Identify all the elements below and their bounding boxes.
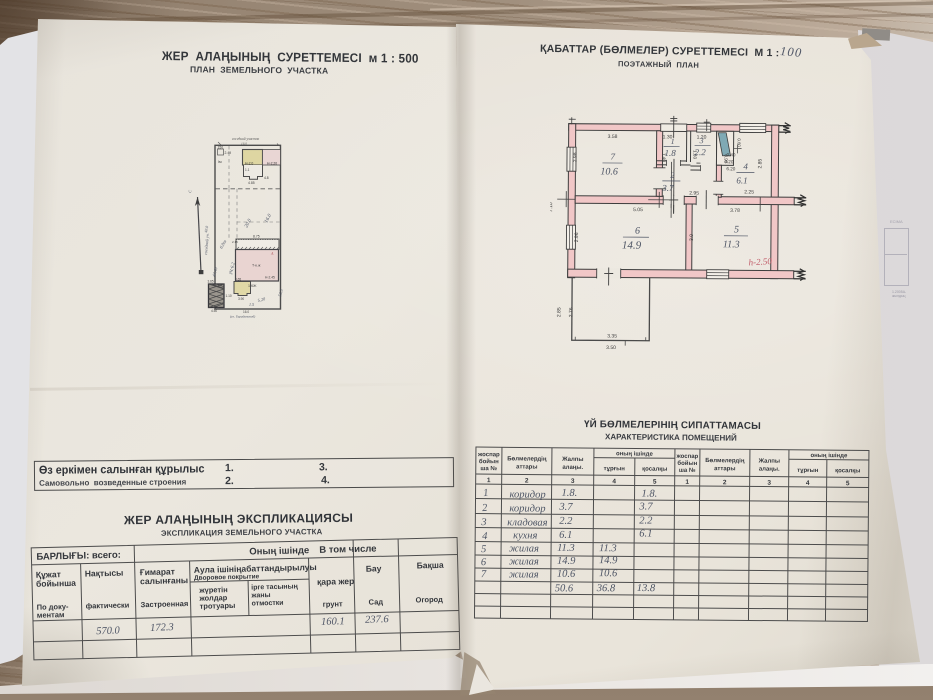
svg-text:қара жер: қара жер — [317, 576, 354, 587]
svg-text:оның ішінде: оның ішінде — [810, 453, 848, 459]
svg-text:Бау: Бау — [366, 563, 382, 573]
svg-text:4: 4 — [482, 531, 488, 542]
svg-text:аттары: аттары — [516, 464, 537, 470]
svg-text:5.20: 5.20 — [257, 296, 266, 303]
svg-text:2.96: 2.96 — [574, 232, 580, 242]
svg-text:жилая: жилая — [509, 556, 539, 567]
svg-text:1.10: 1.10 — [226, 294, 232, 298]
svg-text:Жалпы: Жалпы — [758, 459, 780, 465]
svg-text:ша №: ша № — [679, 467, 696, 474]
svg-text:БАРЛЫҒЫ: всего:: БАРЛЫҒЫ: всего: — [36, 550, 121, 563]
svg-text:14.9: 14.9 — [557, 556, 576, 567]
svg-text:2: 2 — [482, 503, 489, 515]
svg-text:А: А — [270, 251, 274, 256]
svg-text:3.7: 3.7 — [661, 183, 674, 193]
svg-text:3.50: 3.50 — [606, 345, 616, 351]
svg-text:150: 150 — [218, 145, 224, 149]
svg-text:1.5: 1.5 — [249, 302, 254, 307]
svg-text:отмостки: отмостки — [252, 600, 284, 608]
svg-text:6.1: 6.1 — [559, 530, 572, 541]
svg-text:16.0: 16.0 — [243, 310, 249, 314]
svg-text:В том числе: В том числе — [319, 543, 376, 555]
svg-text:коридор: коридор — [509, 503, 545, 514]
svg-text:14.9: 14.9 — [599, 555, 618, 566]
svg-text:44.40: 44.40 — [211, 266, 219, 277]
svg-text:3: 3 — [767, 480, 771, 487]
svg-text:3: 3 — [480, 517, 486, 528]
svg-text:3.90: 3.90 — [238, 297, 244, 301]
svg-text:бойын: бойын — [677, 460, 697, 467]
svg-text:ЗЧ:6.2: ЗЧ:6.2 — [228, 261, 236, 275]
svg-text:бойын: бойын — [479, 458, 499, 465]
svg-text:алаңы.: алаңы. — [562, 465, 583, 471]
svg-text:2.15: 2.15 — [232, 240, 238, 244]
svg-text:3.78: 3.78 — [730, 208, 740, 214]
svg-text:53.5: 53.5 — [277, 288, 284, 297]
svg-text:Жалпы: Жалпы — [561, 457, 583, 463]
svg-text:Бөлмелердің: Бөлмелердің — [705, 458, 745, 464]
svg-text:h-2.50: h-2.50 — [748, 256, 772, 267]
svg-text:6.1: 6.1 — [736, 175, 747, 185]
svg-text:коридор: коридор — [510, 489, 546, 500]
svg-text:1: 1 — [487, 477, 491, 484]
svg-text:2: 2 — [723, 479, 727, 486]
svg-text:1: 1 — [685, 479, 689, 486]
svg-text:10.6: 10.6 — [557, 569, 576, 580]
svg-text:1.8: 1.8 — [665, 148, 677, 158]
svg-text:С: С — [187, 189, 192, 193]
svg-text:2.49: 2.49 — [225, 151, 232, 155]
svg-text:5: 5 — [846, 480, 850, 487]
svg-text:3.0: 3.0 — [689, 234, 695, 241]
svg-text:тұрғын: тұрғын — [604, 466, 626, 472]
svg-text:грунт: грунт — [323, 599, 344, 608]
svg-text:10.6: 10.6 — [600, 166, 618, 177]
svg-text:1.1: 1.1 — [245, 168, 250, 172]
svg-text:6: 6 — [635, 226, 640, 237]
svg-text:237.6: 237.6 — [365, 614, 390, 626]
svg-text:жоспар: жоспар — [676, 454, 699, 460]
svg-text:соседний уч.: соседний уч. — [203, 233, 210, 255]
svg-text:11.3: 11.3 — [557, 543, 575, 554]
svg-text:1.8.: 1.8. — [642, 488, 658, 499]
svg-text:Н-2.0: Н-2.0 — [245, 161, 253, 165]
svg-text:кладовая: кладовая — [507, 517, 547, 528]
svg-text:бойынша: бойынша — [36, 578, 76, 589]
svg-text:4.85: 4.85 — [248, 181, 255, 185]
svg-text:қосалқы: қосалқы — [642, 467, 667, 473]
svg-text:Застроенная: Застроенная — [141, 599, 189, 609]
svg-text:қосалқы: қосалқы — [835, 468, 860, 474]
svg-text:3.65: 3.65 — [208, 280, 214, 284]
svg-text:2.25: 2.25 — [744, 189, 754, 195]
svg-text:4: 4 — [612, 478, 616, 485]
svg-text:соседний участок: соседний участок — [232, 136, 260, 141]
svg-text:2.76: 2.76 — [568, 307, 574, 317]
svg-text:13.8: 13.8 — [637, 583, 656, 594]
svg-text:50.6: 50.6 — [555, 583, 574, 594]
svg-text:3.7: 3.7 — [558, 502, 573, 513]
svg-text:2: 2 — [525, 477, 529, 484]
svg-text:36.8: 36.8 — [596, 583, 616, 594]
svg-text:570.0: 570.0 — [96, 625, 121, 637]
svg-text:ша №: ша № — [480, 465, 497, 472]
svg-text:Т-к.ж: Т-к.ж — [252, 264, 261, 268]
svg-text:2.98: 2.98 — [572, 152, 578, 162]
svg-text:10.6: 10.6 — [599, 568, 618, 579]
svg-text:1 КЖ: 1 КЖ — [248, 284, 257, 288]
svg-text:аттары: аттары — [714, 466, 735, 472]
svg-text:7: 7 — [481, 569, 487, 580]
svg-text:160.1: 160.1 — [321, 616, 345, 628]
svg-text:2.2: 2.2 — [695, 147, 707, 157]
svg-text:4: 4 — [743, 161, 748, 171]
svg-text:Нақтысы: Нақтысы — [85, 568, 124, 579]
svg-text:кухня: кухня — [513, 530, 537, 541]
svg-text:3.65: 3.65 — [235, 278, 241, 282]
svg-text:Н-2.20: Н-2.20 — [267, 161, 277, 165]
svg-text:6.20: 6.20 — [726, 166, 735, 171]
svg-text:тротуары: тротуары — [200, 601, 236, 611]
svg-text:0.60: 0.60 — [737, 138, 742, 147]
svg-text:3.7: 3.7 — [638, 501, 653, 512]
svg-text:Оның ішінде: Оның ішінде — [249, 545, 309, 557]
svg-text:8.75: 8.75 — [253, 235, 260, 239]
svg-text:оның ішінде: оның ішінде — [616, 451, 654, 457]
svg-text:3: 3 — [571, 478, 575, 485]
svg-text:5: 5 — [734, 224, 739, 235]
svg-text:16.0: 16.0 — [241, 142, 247, 146]
svg-text:алаңы.: алаңы. — [759, 467, 780, 473]
svg-text:жилая: жилая — [509, 543, 539, 554]
svg-text:5: 5 — [481, 544, 486, 555]
svg-text:4: 4 — [806, 480, 810, 487]
svg-text:жилая: жилая — [509, 569, 539, 580]
svg-text:2.85: 2.85 — [556, 307, 562, 317]
svg-text:Ім: Ім — [218, 160, 222, 164]
svg-text:5: 5 — [653, 479, 657, 486]
svg-text:5.05: 5.05 — [633, 207, 643, 213]
svg-text:Бақша: Бақша — [417, 560, 444, 571]
svg-text:салынғаны: салынғаны — [140, 575, 188, 586]
svg-text:2.85: 2.85 — [757, 159, 763, 169]
svg-text:3: 3 — [699, 136, 704, 145]
svg-text:Н-2.45: Н-2.45 — [265, 276, 275, 280]
svg-text:6.1: 6.1 — [639, 528, 652, 539]
svg-text:11.3: 11.3 — [599, 543, 617, 554]
svg-text:Сад: Сад — [369, 597, 384, 606]
svg-text:7: 7 — [610, 151, 615, 161]
svg-text:2.95: 2.95 — [689, 191, 699, 197]
svg-text:тұрғын: тұрғын — [797, 468, 819, 474]
svg-text:Огород: Огород — [415, 595, 443, 605]
svg-text:ментам: ментам — [37, 610, 65, 620]
svg-text:172.3: 172.3 — [150, 622, 174, 634]
svg-text:14.9: 14.9 — [622, 240, 642, 252]
svg-text:жоспар: жоспар — [477, 452, 500, 458]
svg-text:3.58: 3.58 — [608, 134, 618, 140]
svg-text:ірге тасының: ірге тасының — [251, 582, 299, 591]
svg-text:20.0: 20.0 — [243, 218, 253, 229]
svg-text:1: 1 — [671, 137, 675, 146]
svg-text:4.50: 4.50 — [211, 309, 217, 313]
svg-text:жаны: жаны — [250, 592, 270, 599]
svg-text:2.2: 2.2 — [559, 516, 573, 527]
svg-text:1.8.: 1.8. — [562, 488, 578, 499]
svg-text:фактически: фактически — [86, 600, 130, 610]
svg-text:2.2: 2.2 — [639, 515, 653, 526]
svg-text:3.35: 3.35 — [607, 333, 617, 339]
svg-text:1: 1 — [483, 488, 489, 499]
svg-text:7.10: 7.10 — [549, 202, 554, 212]
svg-text:11.3: 11.3 — [723, 239, 740, 250]
svg-text:6.0ш: 6.0ш — [218, 239, 227, 250]
svg-text:2: 2 — [670, 171, 674, 180]
svg-text:6: 6 — [481, 557, 487, 568]
svg-text:(ул. Тарадановой): (ул. Тарадановой) — [230, 314, 256, 319]
svg-text:4.8: 4.8 — [264, 176, 269, 180]
svg-text:0.90: 0.90 — [723, 154, 728, 163]
svg-text:Бөлмелердің: Бөлмелердің — [507, 456, 547, 462]
svg-text:40.0: 40.0 — [203, 225, 209, 233]
